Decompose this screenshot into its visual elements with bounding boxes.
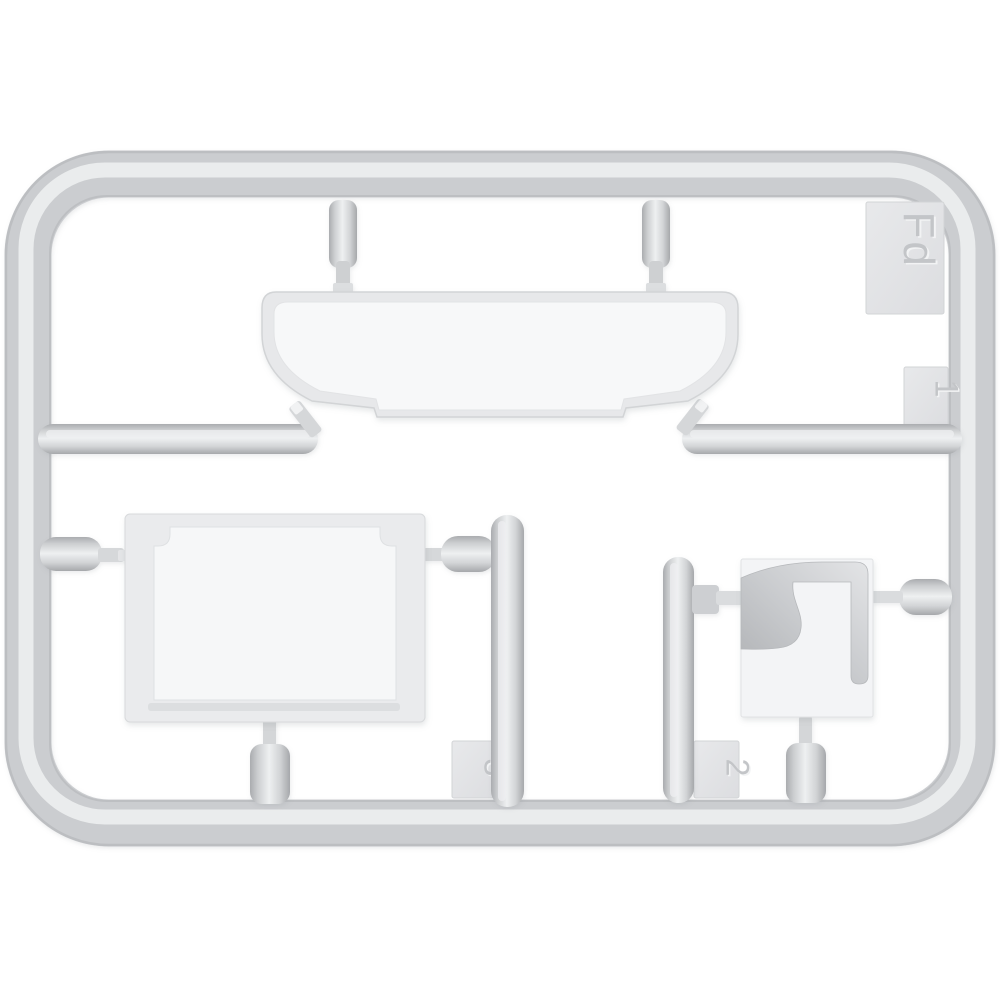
bracket-right-stub [871,579,952,615]
sprue-photo: Fd Fd 1 1 3 3 2 2 [0,0,1000,1000]
part-panel [125,514,425,722]
part-2-number-tab: 2 2 [694,741,757,798]
sprue-id-label: Fd [894,212,943,269]
panel-bottom-gate [250,717,290,804]
top-gate-left [329,200,357,294]
part-1-number: 1 [929,380,965,398]
bracket-bottom-gate [786,716,826,803]
sprue-id-tab: Fd Fd [866,202,945,314]
top-gate-right [642,200,670,294]
mid-left-runner [38,400,323,454]
part-bracket [741,559,873,717]
panel-right-stub [423,536,496,572]
panel-left-stub [40,537,127,571]
part-tub [262,292,738,417]
part-2-number: 2 [720,759,756,777]
photo-canvas: Fd Fd 1 1 3 3 2 2 [0,0,1000,1000]
center-vertical-runner [491,515,524,807]
